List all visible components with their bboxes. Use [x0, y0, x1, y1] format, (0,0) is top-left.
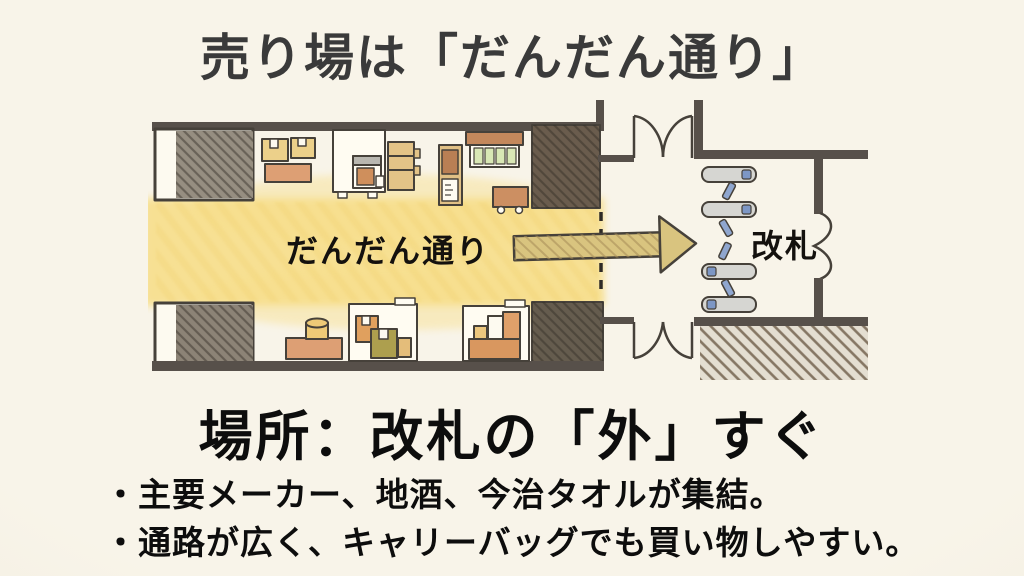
floor-map-illustration: だんだん通り 改札	[148, 100, 868, 390]
bullet-item: ・通路が広く、キャリーバッグでも買い物しやすい。	[104, 525, 919, 560]
slide: 売り場は「だんだん通り」	[0, 0, 1024, 576]
stall-box-booth	[349, 298, 417, 361]
door-top	[598, 116, 692, 162]
bullet-list: ・主要メーカー、地酒、今治タオルが集結。 ・通路が広く、キャリーバッグでも買い物…	[104, 477, 919, 573]
ticket-gate-label: 改札	[751, 228, 819, 264]
bullet-item: ・主要メーカー、地酒、今治タオルが集結。	[104, 477, 919, 512]
stall-vending-cabinet	[439, 145, 462, 205]
door-bottom	[600, 317, 692, 358]
stall-counter-table	[333, 130, 385, 198]
ticket-gate-machines	[702, 167, 756, 312]
station-floor-map: だんだん通り 改札	[148, 100, 868, 390]
stall-display-booth	[463, 300, 529, 361]
stall-showcase	[466, 132, 523, 167]
street-label: だんだん通り	[286, 233, 490, 269]
outside-floor-hatch	[700, 326, 868, 380]
bottom-wall	[152, 361, 604, 371]
slide-title: 売り場は「だんだん通り」	[0, 18, 1024, 90]
stall-boxes	[262, 138, 315, 182]
location-subtitle: 場所：改札の「外」すぐ	[0, 392, 1024, 471]
